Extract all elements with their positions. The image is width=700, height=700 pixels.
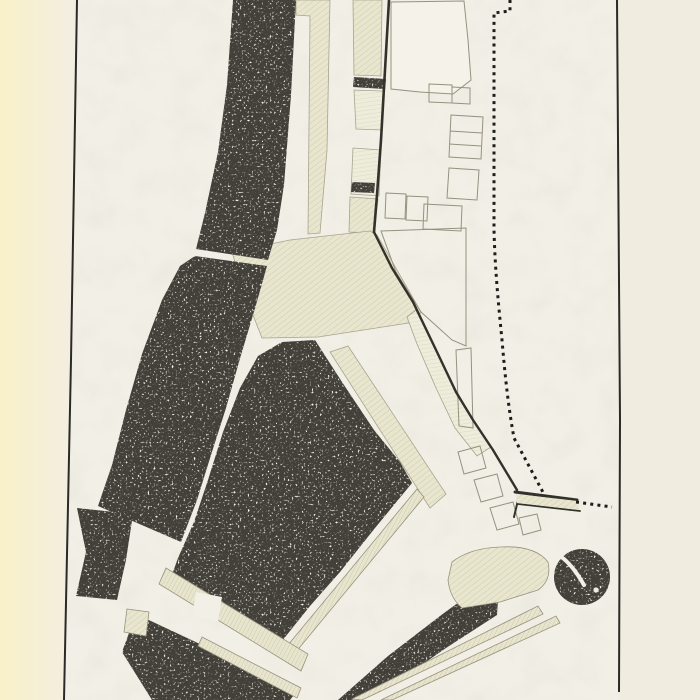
bastion-fleck <box>593 587 598 592</box>
beige-column-east-upper <box>353 0 382 76</box>
small-outwork-square <box>124 609 149 636</box>
book-page <box>0 0 700 700</box>
town-plan-plate <box>0 0 700 700</box>
large-building-block <box>391 1 471 94</box>
beige-column-east-mid <box>354 90 383 130</box>
page-right-margin <box>617 0 700 700</box>
